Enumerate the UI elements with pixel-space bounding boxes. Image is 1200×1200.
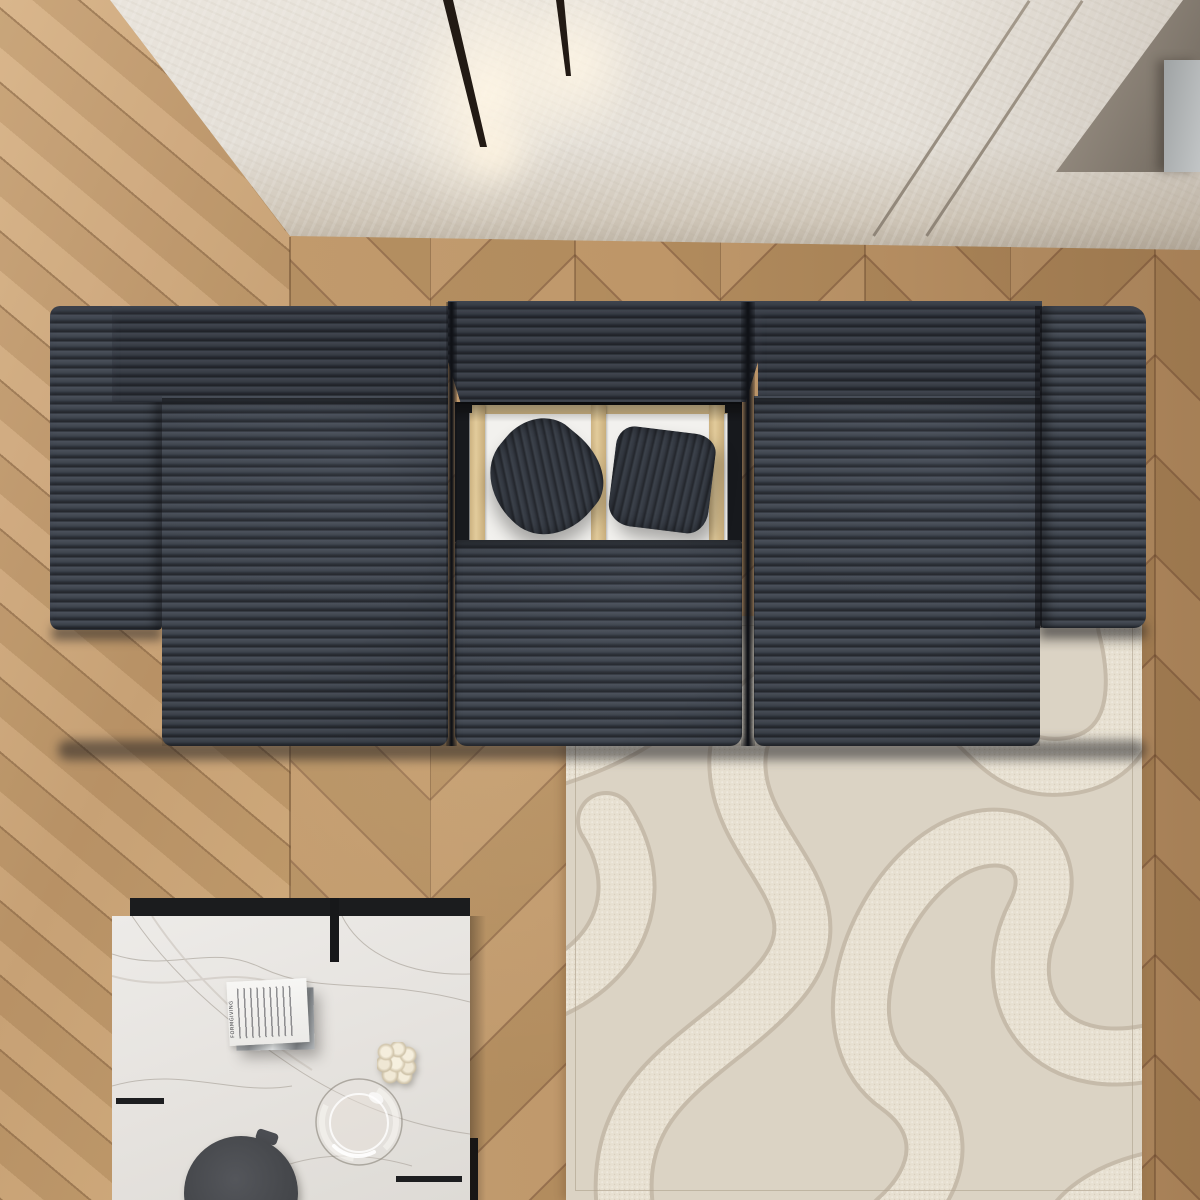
white-book: FORMGIVING bbox=[226, 978, 309, 1046]
sofa-right-armrest bbox=[1040, 306, 1146, 628]
living-room-render: FORMGIVING bbox=[0, 0, 1200, 1200]
sofa-section-seam bbox=[1035, 306, 1042, 628]
sofa-left-backrest bbox=[112, 306, 448, 402]
glass-carafe bbox=[314, 1076, 406, 1170]
sofa-center-backrest bbox=[448, 301, 758, 402]
frame-rail bbox=[470, 405, 485, 542]
sofa-section-seam bbox=[741, 302, 755, 746]
platform-shadow bbox=[455, 402, 742, 422]
marble-inlay-bar bbox=[116, 1098, 164, 1104]
light-bar-icon bbox=[443, 0, 487, 147]
sofa-right-seat bbox=[754, 396, 1040, 746]
backrest-front-shadow bbox=[162, 398, 448, 407]
book-spine-text-rows bbox=[237, 986, 298, 1039]
backrest-front-shadow bbox=[754, 398, 1040, 407]
sofa-right-backrest bbox=[758, 301, 1042, 402]
light-bar-icon bbox=[556, 0, 571, 76]
sofa-left-seat bbox=[162, 396, 448, 746]
table-slot-bar bbox=[330, 898, 339, 962]
sofa-center-ottoman bbox=[455, 540, 742, 746]
table-shadow bbox=[470, 916, 486, 1200]
corduroy-pillow bbox=[606, 424, 717, 535]
marble-inlay-bar bbox=[396, 1176, 462, 1182]
sofa-section-seam bbox=[446, 302, 457, 746]
